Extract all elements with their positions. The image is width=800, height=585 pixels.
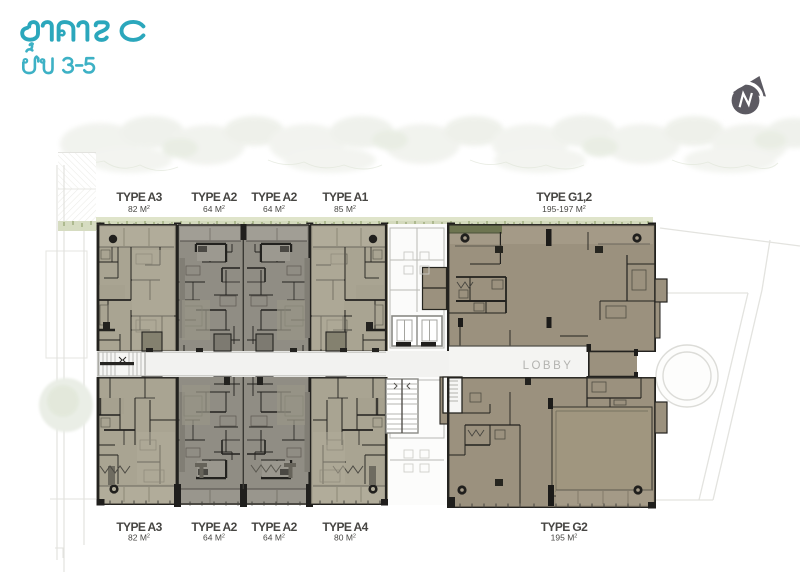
svg-text:195-197 M2: 195-197 M2 <box>542 204 586 214</box>
svg-text:64 M2: 64 M2 <box>263 204 285 214</box>
svg-text:82 M2: 82 M2 <box>128 204 150 214</box>
svg-text:TYPE A2: TYPE A2 <box>191 190 237 204</box>
svg-text:TYPE A2: TYPE A2 <box>251 190 297 204</box>
svg-text:TYPE A1: TYPE A1 <box>322 190 368 204</box>
svg-text:64 M2: 64 M2 <box>203 204 225 214</box>
svg-text:64 M2: 64 M2 <box>203 533 225 543</box>
svg-text:85 M2: 85 M2 <box>334 204 356 214</box>
svg-text:LOBBY: LOBBY <box>523 360 574 372</box>
svg-text:TYPE G1,2: TYPE G1,2 <box>536 190 592 204</box>
svg-text:80 M2: 80 M2 <box>334 533 356 543</box>
svg-text:195 M2: 195 M2 <box>551 533 578 543</box>
svg-text:64 M2: 64 M2 <box>263 533 285 543</box>
svg-text:82 M2: 82 M2 <box>128 533 150 543</box>
svg-text:TYPE A3: TYPE A3 <box>116 190 162 204</box>
